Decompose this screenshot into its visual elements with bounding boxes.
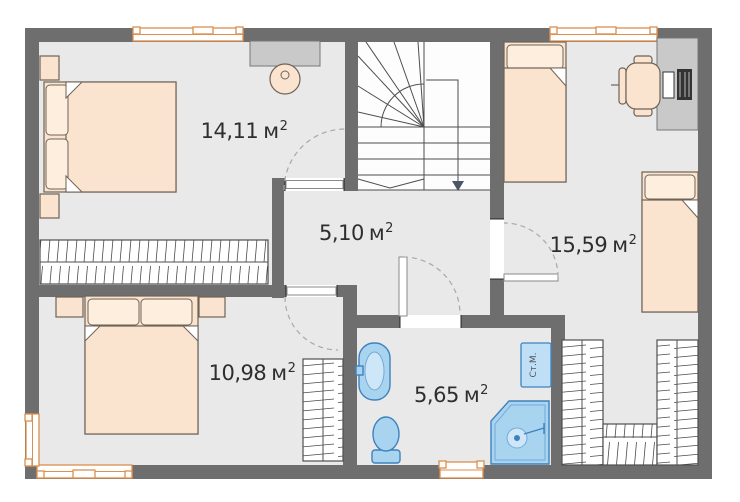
wall-stub-hall (272, 178, 284, 191)
window-bedroom-second-left (25, 414, 39, 466)
window-bathroom (439, 461, 484, 478)
shower-cabin (491, 401, 549, 464)
washing-machine-label: Ст.М. (529, 352, 539, 377)
nightstand-bottom (40, 194, 59, 218)
wardrobe-bedroom-second (303, 359, 343, 461)
window-bedroom-second-bottom (37, 465, 132, 478)
wardrobe-kids-middle (603, 424, 657, 465)
bedside-table-right (199, 297, 225, 317)
wall-kids-left-stub (490, 280, 504, 316)
label-bedroom-main: 14,11м2 (201, 119, 288, 143)
wall-bathroom-top-right (462, 315, 565, 328)
floor-plan-drawing: Ст.М. 14,11м2 5,10м2 15,59м2 10,98м2 5,6… (0, 0, 740, 502)
toilet (372, 417, 400, 463)
wardrobe-kids-right (657, 340, 698, 465)
wall-stairs-left (345, 42, 358, 191)
computer-tower-icon (663, 72, 674, 98)
bed-single-top (504, 42, 566, 182)
window-kids-room (550, 27, 657, 41)
label-kids-room: 15,59м2 (550, 233, 637, 257)
bed-single-right (642, 172, 698, 312)
wall-left (25, 28, 39, 479)
door-leaf (399, 257, 407, 316)
bed-double-main (44, 82, 176, 192)
wall-right (698, 28, 712, 479)
window-bedroom-main (133, 27, 243, 41)
wall-stairs-right (490, 42, 504, 218)
wall-bathroom-top-left (357, 315, 399, 328)
wall-bedroom2-top (25, 285, 285, 297)
floor-plan-page: Ст.М. 14,11м2 5,10м2 15,59м2 10,98м2 5,6… (0, 0, 740, 502)
wardrobe-bedroom-main (40, 240, 268, 284)
nightstand-top (40, 56, 59, 80)
sink (356, 343, 390, 400)
wardrobe-kids-left (562, 340, 603, 465)
door-leaf (504, 274, 558, 281)
wall-bedroom2-right (343, 285, 357, 466)
wall-hall-left (272, 191, 284, 298)
desk (657, 38, 698, 130)
label-hallway: 5,10м2 (319, 221, 393, 245)
bedside-table-left (56, 297, 83, 317)
label-bathroom: 5,65м2 (414, 383, 488, 407)
washing-machine: Ст.М. (521, 343, 551, 387)
label-bedroom-second: 10,98м2 (209, 361, 296, 385)
bed-double-second (85, 296, 198, 434)
